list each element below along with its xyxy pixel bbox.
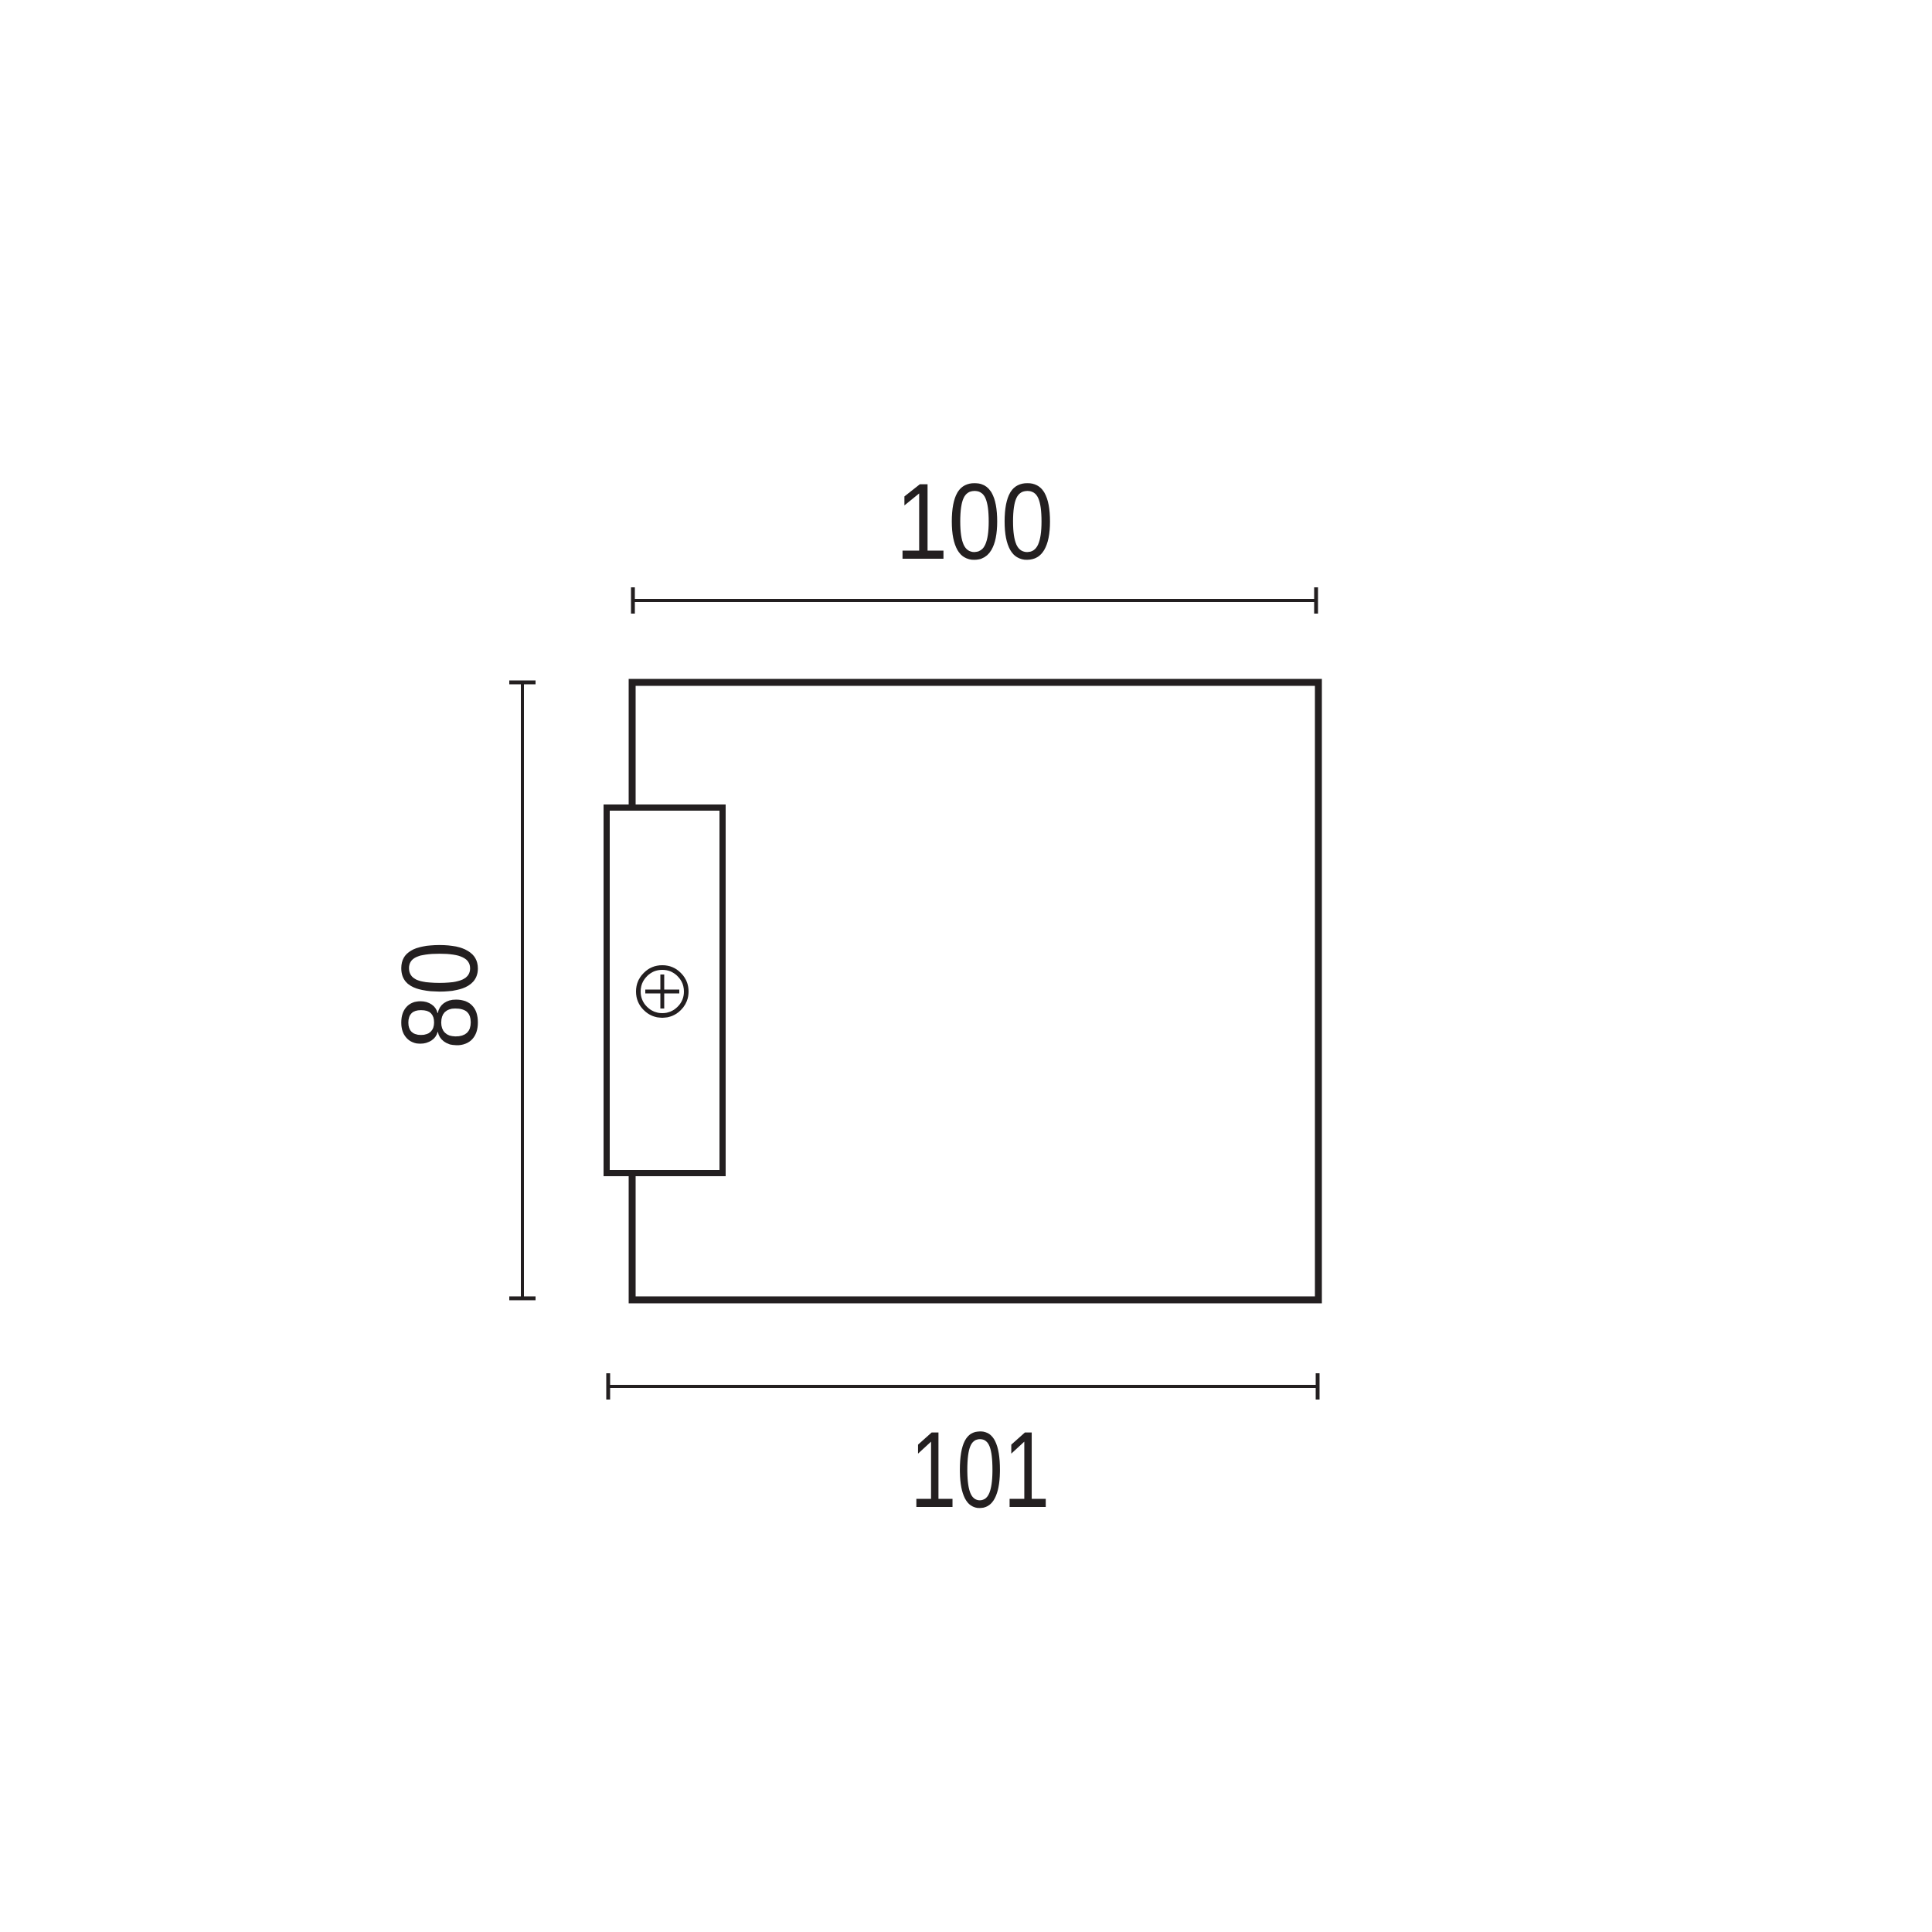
dim-label-bottom: 101 — [910, 1409, 1050, 1530]
dim-top: 100 — [633, 461, 1316, 614]
dim-left: 80 — [379, 682, 536, 1298]
dimension-drawing: 100 80 101 — [0, 0, 1932, 1932]
dim-label-top: 100 — [896, 461, 1054, 582]
dim-label-left: 80 — [379, 941, 500, 1049]
screw-head-icon — [638, 968, 686, 1015]
dim-bottom: 101 — [608, 1373, 1318, 1530]
product-body-outline — [632, 682, 1318, 1300]
